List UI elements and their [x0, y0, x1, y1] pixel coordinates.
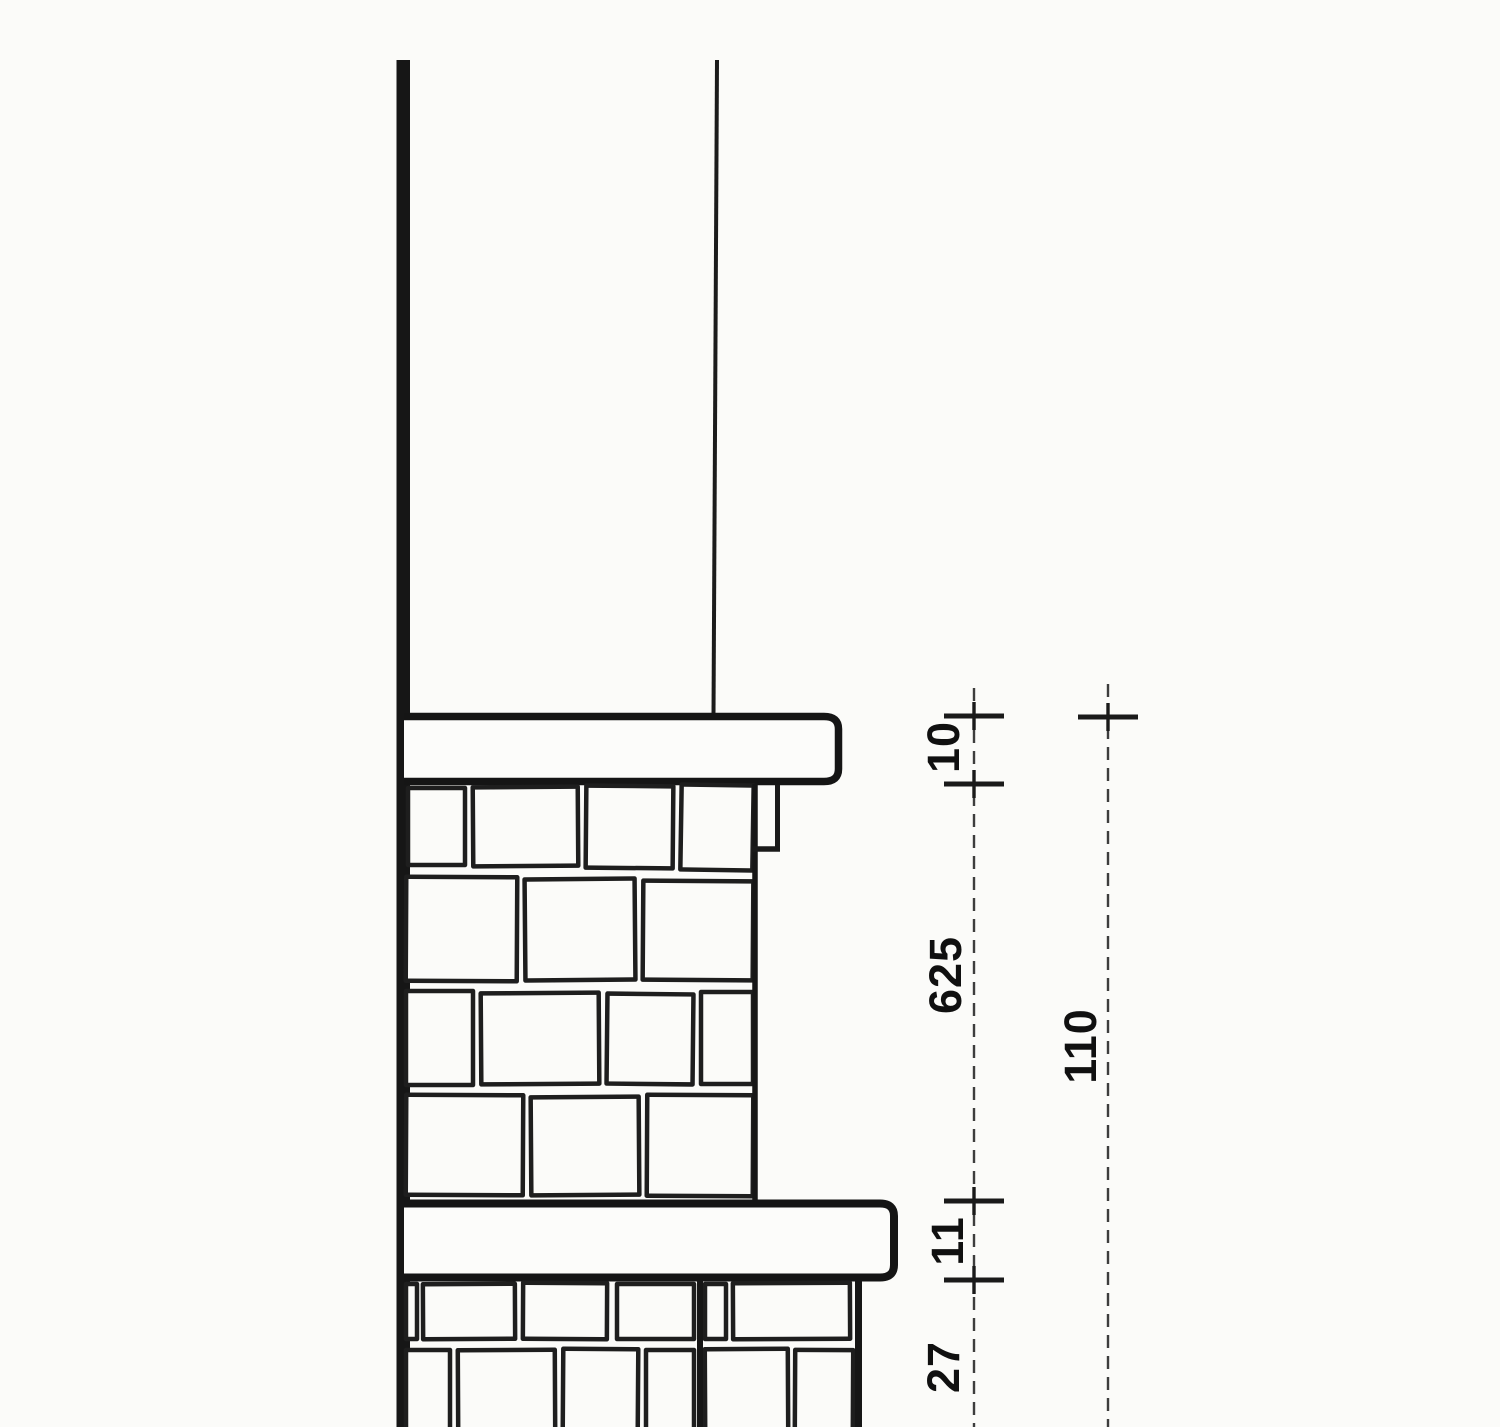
- stone: [586, 786, 674, 869]
- upper-masonry: [406, 784, 754, 1196]
- upper-wall-face-line: [714, 60, 718, 714]
- dimension-chain-left: 10 625 11 27: [918, 688, 1004, 1427]
- stone: [795, 1350, 853, 1427]
- stone: [705, 1349, 788, 1427]
- stone: [408, 788, 465, 865]
- stone: [406, 877, 518, 982]
- drawing-sheet: 10 625 11 27 110: [0, 0, 1500, 1427]
- stone: [406, 1095, 524, 1196]
- stone: [406, 1350, 450, 1427]
- stone: [473, 787, 579, 867]
- stone: [525, 879, 636, 981]
- stone: [705, 1284, 726, 1339]
- dim-label-overall-height: 110: [1055, 1008, 1106, 1084]
- stone: [646, 1350, 694, 1427]
- dim-label-string-course-thickness: 11: [922, 1216, 973, 1266]
- stone: [643, 881, 754, 981]
- stone: [458, 1350, 555, 1427]
- stone: [523, 1283, 607, 1339]
- upper-cap-stone: [404, 717, 839, 782]
- dimension-chain-right: 110: [1055, 684, 1138, 1427]
- stone: [563, 1349, 639, 1427]
- string-course-cap: [404, 1204, 894, 1278]
- dim-label-upper-cap-thickness: 10: [918, 721, 969, 773]
- stone: [423, 1284, 515, 1339]
- stone: [406, 991, 473, 1085]
- stone: [733, 1283, 850, 1340]
- dim-label-upper-wall-height: 625: [920, 936, 971, 1014]
- wall-section-drawing: 10 625 11 27 110: [0, 0, 1500, 1427]
- stone: [607, 994, 694, 1085]
- stone: [647, 1095, 754, 1197]
- dim-label-lower-wall-visible-height: 27: [918, 1341, 969, 1393]
- lower-masonry: [406, 1283, 853, 1427]
- stone: [531, 1097, 640, 1196]
- stone: [680, 784, 753, 870]
- stone: [701, 992, 753, 1084]
- stone: [406, 1284, 417, 1339]
- stone: [481, 993, 600, 1085]
- stone: [617, 1284, 694, 1339]
